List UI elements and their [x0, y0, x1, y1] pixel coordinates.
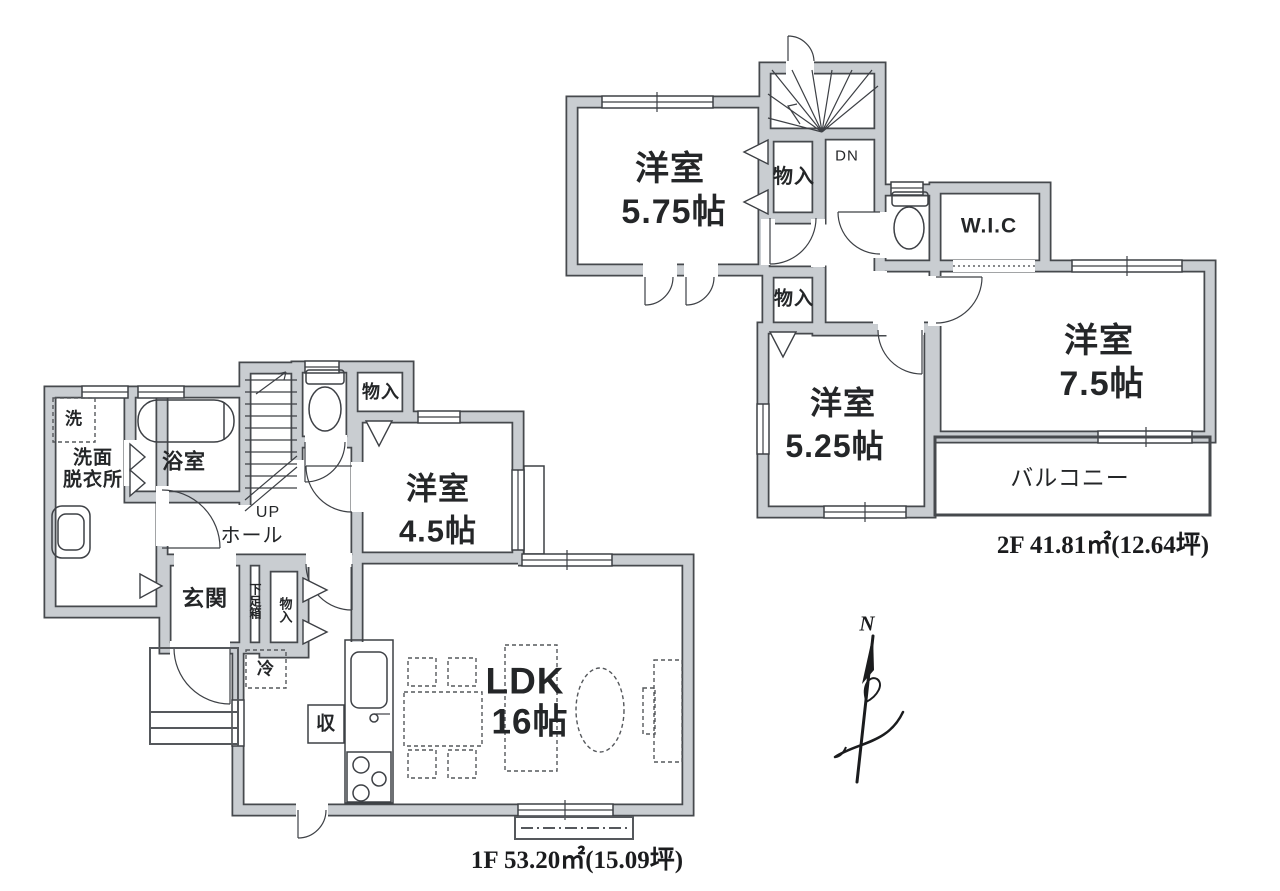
room-label-ldk-size: 16帖 [492, 705, 569, 740]
room-label-2f-youshitsu575-size: 5.75帖 [621, 195, 726, 229]
bathtub-icon [138, 400, 234, 442]
room-label-monoire-hall: 物入 [362, 383, 400, 401]
kitchen-counter-icon [345, 640, 393, 803]
room-label-2f-youshitsu525-size: 5.25帖 [785, 430, 884, 462]
2f-walls [572, 68, 1210, 512]
porch-icon [150, 648, 238, 744]
room-label-wic: W.I.C [961, 216, 1017, 237]
room-label-youshitsu45-size: 4.5帖 [399, 516, 477, 547]
room-label-storage: 収 [316, 715, 336, 734]
room-label-balcony: バルコニー [1010, 467, 1130, 490]
room-label-genkan: 玄関 [182, 588, 228, 610]
room-label-2f-monoire-upper: 物入 [773, 167, 815, 187]
stairs-up-label: UP [256, 505, 280, 521]
north-label: N [859, 612, 874, 637]
stairs-2f-icon [768, 70, 878, 132]
sink-icon [52, 506, 90, 558]
room-label-2f-youshitsu575-name: 洋室 [635, 152, 705, 186]
room-label-2f-youshitsu75-name: 洋室 [1064, 324, 1134, 358]
room-label-bathroom: 浴室 [162, 452, 206, 473]
room-label-washroom-line2: 脱衣所 [63, 471, 123, 490]
room-label-ldk-name: LDK [485, 663, 564, 700]
wall-openings [124, 61, 1035, 817]
toilet-1f-icon [306, 370, 344, 431]
room-label-2f-monoire-lower: 物入 [774, 290, 814, 309]
room-label-getabako: 下足箱 [249, 583, 261, 619]
terrace-step-icon [515, 817, 633, 839]
room-label-washer: 洗 [65, 411, 83, 428]
caption-2f-area: 2F 41.81㎡(12.64坪) [997, 525, 1209, 561]
room-label-hall: ホール [221, 526, 284, 546]
room-label-2f-youshitsu525-name: 洋室 [810, 387, 876, 419]
toilet-2f-icon [892, 192, 928, 249]
room-label-washroom-line1: 洗面 [73, 449, 113, 468]
caption-1f-area: 1F 53.20㎡(15.09坪) [471, 840, 683, 876]
stairs-dn-label: DN [835, 149, 859, 164]
floor-plan-drawing [0, 0, 1280, 891]
stairs-1f-icon [245, 372, 297, 511]
room-label-2f-youshitsu75-size: 7.5帖 [1059, 367, 1144, 401]
north-compass-icon [835, 634, 903, 782]
room-label-youshitsu45-name: 洋室 [406, 474, 470, 505]
room-label-refrigerator: 冷 [257, 661, 275, 678]
room-label-monoire-genkan: 物入 [279, 597, 292, 623]
floor-plan-page: 洋室 5.75帖 物入 DN W.I.C 洋室 7.5帖 物入 洋室 5.25帖… [0, 0, 1280, 891]
